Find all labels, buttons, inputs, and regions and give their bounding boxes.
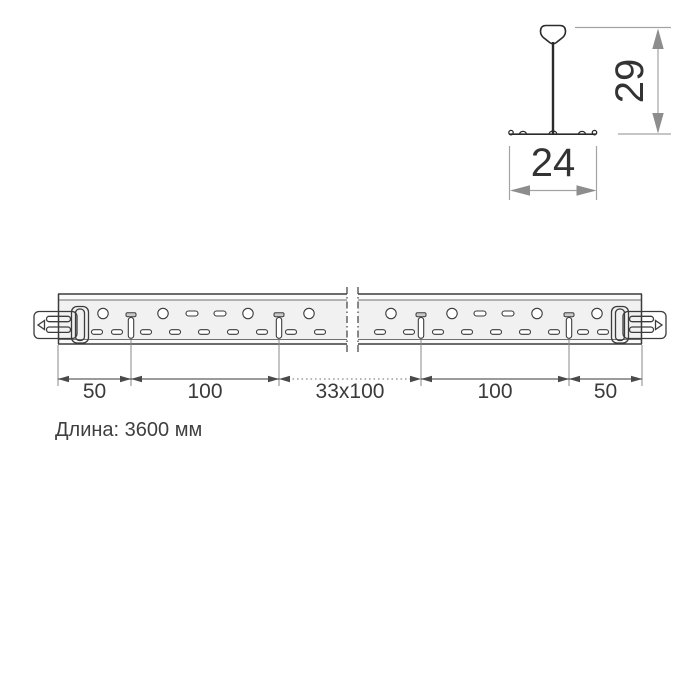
upper-slot-hole: [186, 311, 198, 316]
product-drawing-page: 29 24: [0, 0, 700, 700]
round-hole: [592, 308, 602, 318]
dim-arrowhead-icon: [558, 376, 569, 383]
lower-slot-hole: [404, 330, 415, 335]
dim-arrowhead-icon: [569, 376, 580, 383]
connector-tab-left-icon: [38, 321, 45, 330]
hanger-slot-cap: [416, 313, 426, 317]
width-value: 24: [531, 141, 576, 185]
connector-tab-right-icon: [656, 321, 663, 330]
lower-slot-hole: [228, 330, 239, 335]
cross-section-view: 29 24: [509, 26, 671, 201]
length-note: Длина: 3600 мм: [55, 419, 202, 441]
lower-slot-hole: [257, 330, 268, 335]
upper-slot-hole: [474, 311, 486, 316]
lower-slot-hole: [598, 330, 609, 335]
dim-label: 50: [594, 380, 617, 403]
lower-slot-hole: [578, 330, 589, 335]
technical-drawing: 29 24: [0, 0, 700, 700]
hanger-slot-cap: [274, 313, 284, 317]
round-hole: [243, 308, 253, 318]
lower-slot-hole: [520, 330, 531, 335]
dim-label: 33x100: [316, 380, 385, 403]
hanger-slot-hole: [128, 318, 133, 339]
dim-arrowhead-icon: [279, 376, 290, 383]
dimension-chain: 5010033x10010050: [58, 340, 642, 403]
dim-label: 100: [187, 380, 222, 403]
hanger-slot-hole: [276, 318, 281, 339]
dim-arrowhead-icon: [58, 376, 69, 383]
dim-height: 29: [575, 28, 671, 135]
lower-slot-hole: [141, 330, 152, 335]
lower-slot-hole: [375, 330, 386, 335]
main-runner-bar: [34, 287, 666, 353]
lower-slot-hole: [315, 330, 326, 335]
round-hole: [386, 308, 396, 318]
round-hole: [304, 308, 314, 318]
arrow-up-icon: [652, 29, 663, 50]
profile-bulb: [541, 26, 566, 44]
dim-label: 100: [477, 380, 512, 403]
lower-slot-hole: [433, 330, 444, 335]
hanger-slot-cap: [564, 313, 574, 317]
lower-slot-hole: [286, 330, 297, 335]
dim-arrowhead-icon: [268, 376, 279, 383]
dim-arrowhead-icon: [410, 376, 421, 383]
lower-slot-hole: [491, 330, 502, 335]
arrow-down-icon: [652, 113, 663, 134]
arrow-right-icon: [577, 185, 597, 196]
lower-slot-hole: [112, 330, 123, 335]
dim-arrowhead-icon: [631, 376, 642, 383]
round-hole: [158, 308, 168, 318]
upper-slot-hole: [502, 311, 514, 316]
lower-slot-hole: [199, 330, 210, 335]
arrow-left-icon: [510, 185, 530, 196]
break-lines: [347, 287, 358, 353]
hanger-slot-hole: [418, 318, 423, 339]
lower-slot-hole: [170, 330, 181, 335]
dim-arrowhead-icon: [120, 376, 131, 383]
round-hole: [98, 308, 108, 318]
dim-arrowhead-icon: [421, 376, 432, 383]
round-hole: [532, 308, 542, 318]
round-hole: [447, 308, 457, 318]
dim-arrowhead-icon: [131, 376, 142, 383]
lower-slot-hole: [549, 330, 560, 335]
bar-body-right: [358, 294, 642, 344]
hanger-slot-hole: [566, 318, 571, 339]
lower-slot-hole: [92, 330, 103, 335]
hanger-slot-cap: [126, 313, 136, 317]
lower-slot-hole: [462, 330, 473, 335]
height-value: 29: [608, 59, 652, 104]
upper-slot-hole: [214, 311, 226, 316]
dim-label: 50: [83, 380, 106, 403]
dim-width: 24: [510, 141, 597, 200]
